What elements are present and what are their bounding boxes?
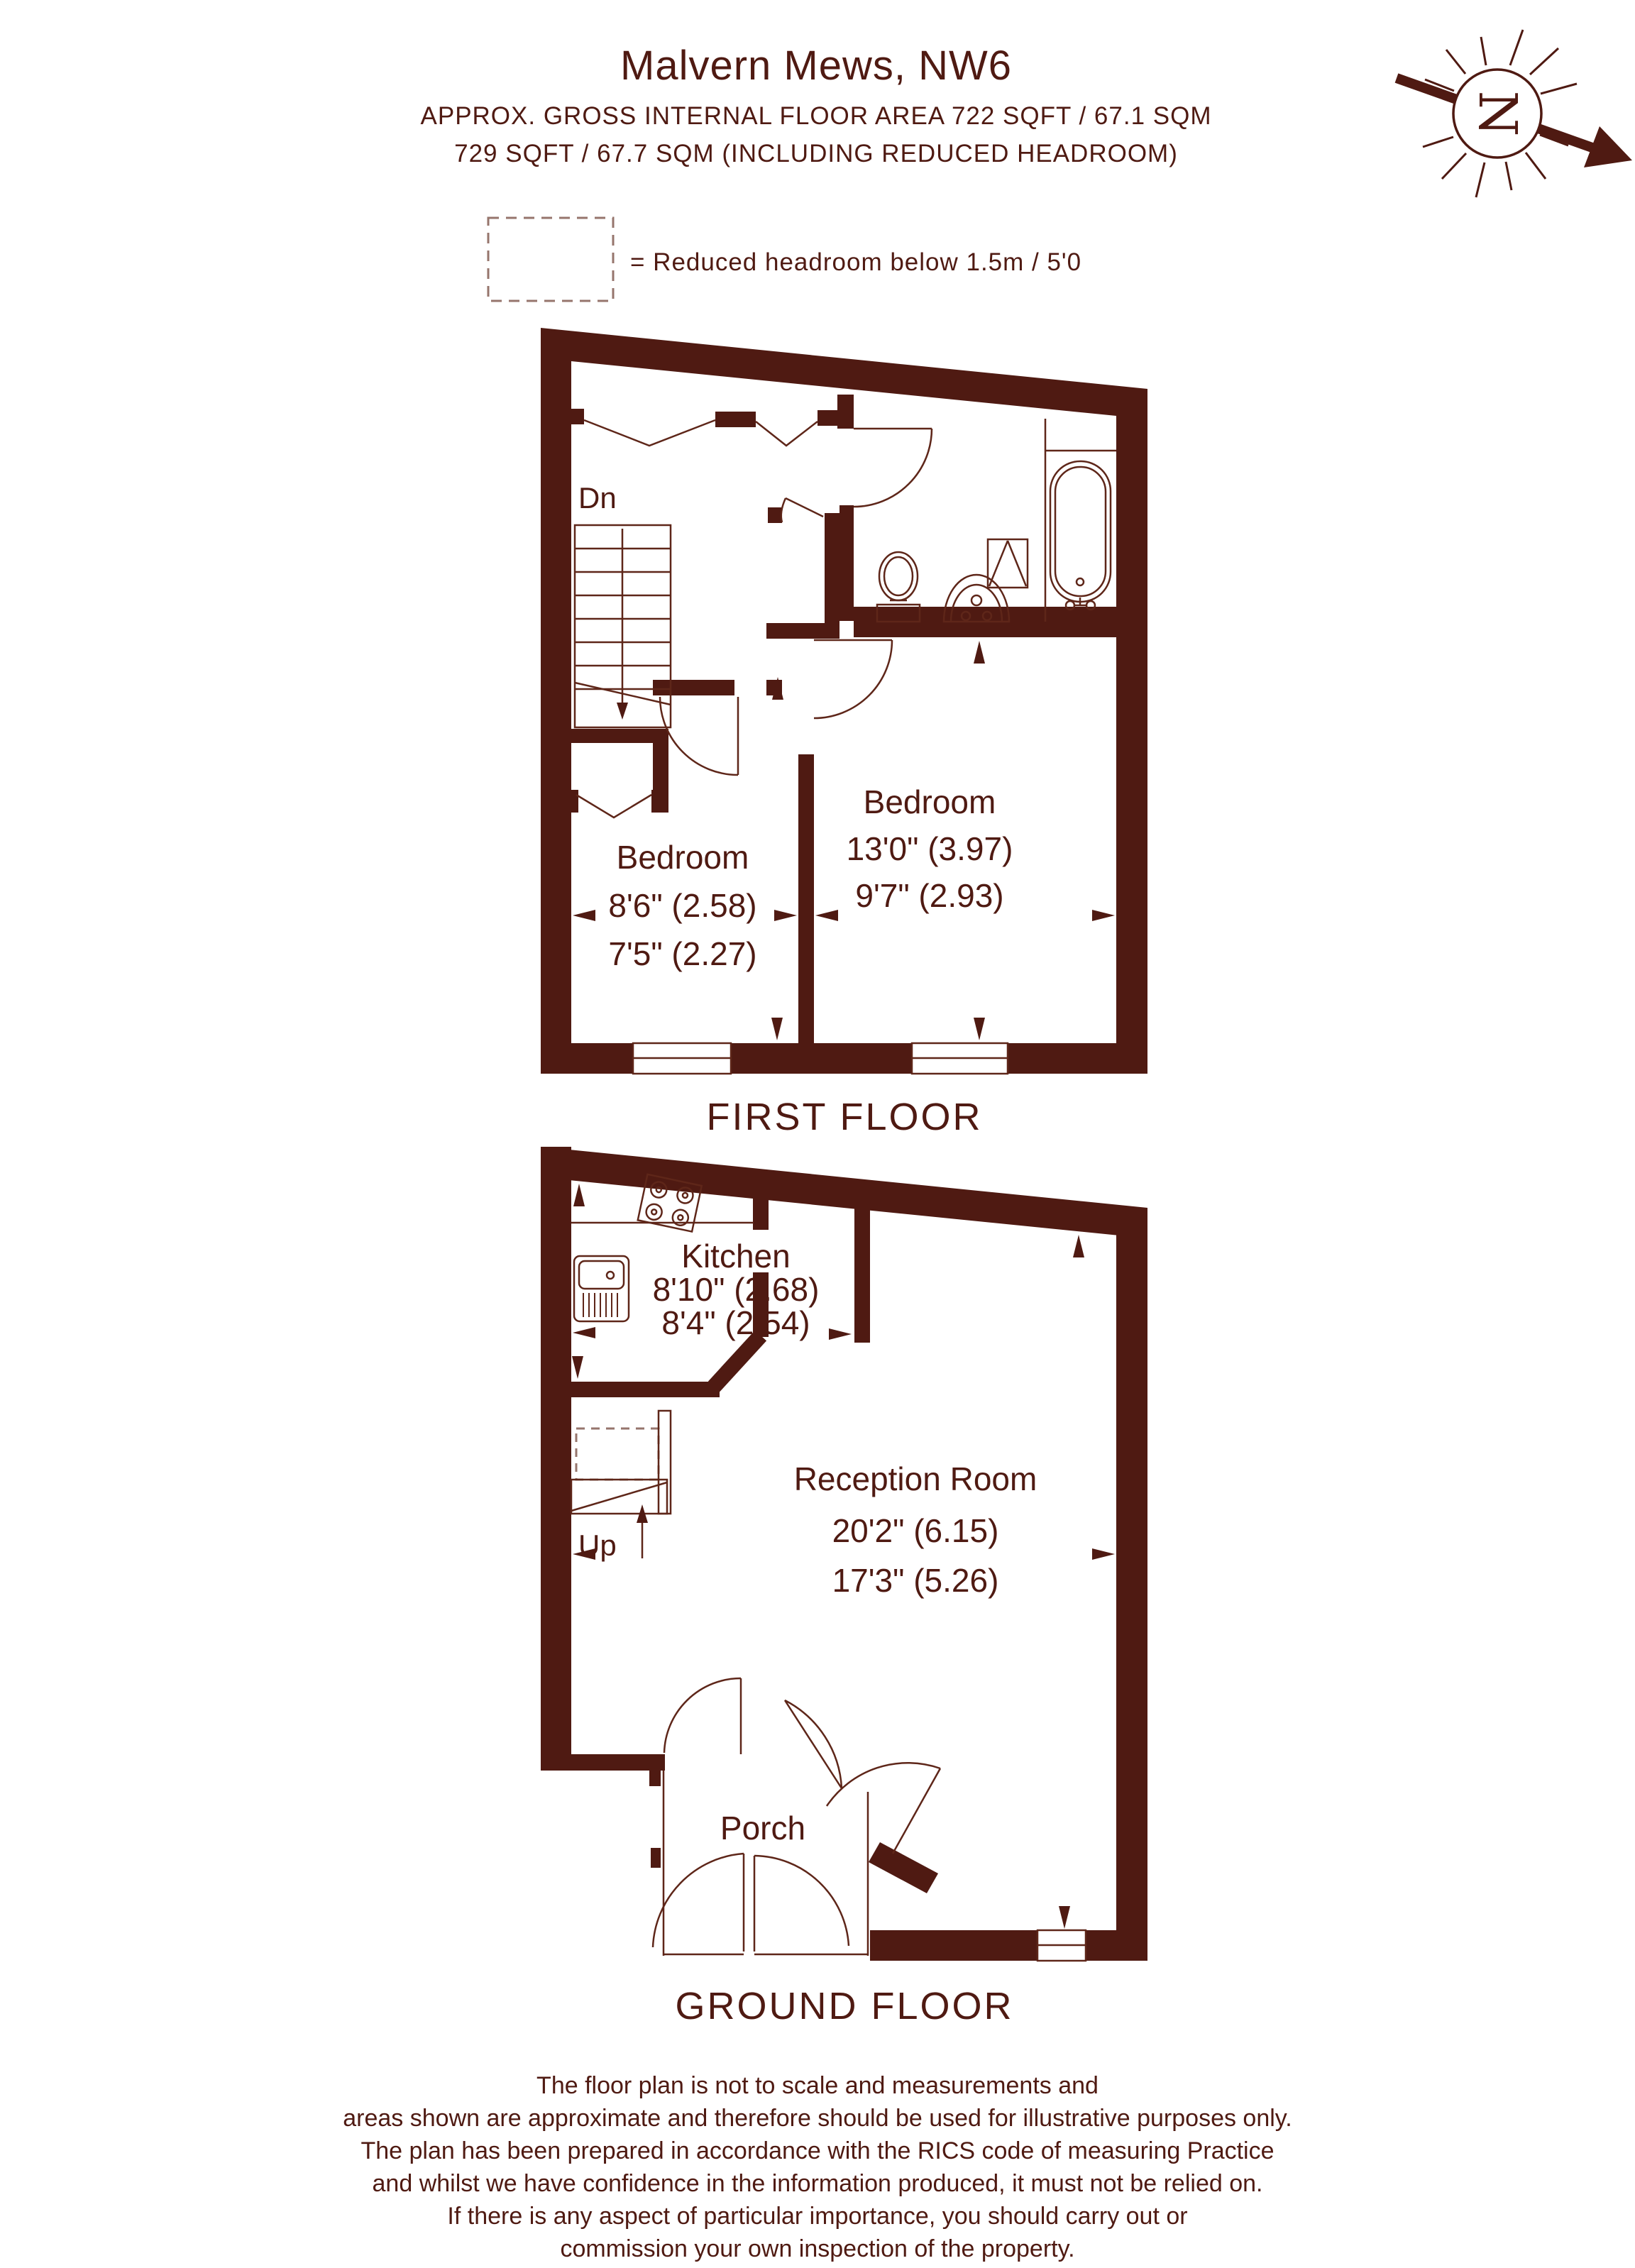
big-bedroom-door	[814, 640, 892, 718]
room-name: Reception Room	[794, 1460, 1037, 1497]
porch-angled-wall	[869, 1842, 938, 1893]
ground-bottom-right-wall	[870, 1930, 1147, 1961]
wall-stub	[649, 1771, 661, 1786]
small-bedroom-door	[660, 697, 738, 775]
subtitle-line2: 729 SQFT / 67.7 SQM (INCLUDING REDUCED H…	[454, 140, 1178, 167]
window	[912, 1043, 1008, 1074]
legend-text: = Reduced headroom below 1.5m / 5'0	[630, 248, 1081, 276]
first-floor-caption: FIRST FLOOR	[706, 1096, 982, 1138]
subtitle-line1: APPROX. GROSS INTERNAL FLOOR AREA 722 SQ…	[421, 102, 1212, 130]
ground-bottom-left-wall	[541, 1754, 665, 1771]
bath-icon	[1045, 419, 1116, 622]
room-dim-metric: 7'5" (2.27)	[608, 935, 756, 972]
reduced-headroom-swatch	[488, 218, 613, 301]
north-compass-icon: N	[1397, 30, 1632, 197]
room-dim-imperial: 20'2" (6.15)	[832, 1512, 999, 1549]
room-label-porch: Porch	[720, 1810, 805, 1846]
room-dim-imperial: 8'10" (2.68)	[653, 1271, 820, 1308]
disclaimer-line: The plan has been prepared in accordance…	[360, 2137, 1274, 2164]
room-name: Bedroom	[864, 783, 996, 820]
ground-right-wall	[1116, 1208, 1147, 1961]
room-label-kitchen: Kitchen 8'10" (2.68) 8'4" (2.54)	[653, 1238, 820, 1341]
stairs-direction-arrow	[617, 703, 628, 720]
stairs-label: Dn	[578, 481, 617, 514]
porch-inner-double-doors	[664, 1678, 842, 1788]
ground-floor-plan: Up	[541, 1147, 1147, 2027]
disclaimer: The floor plan is not to scale and measu…	[343, 2072, 1292, 2262]
disclaimer-line: areas shown are approximate and therefor…	[343, 2105, 1292, 2132]
disclaimer-line: and whilst we have confidence in the inf…	[373, 2170, 1263, 2197]
disclaimer-line: The floor plan is not to scale and measu…	[536, 2072, 1099, 2099]
bathroom-door	[854, 429, 932, 507]
wall-stub	[651, 1848, 661, 1868]
reduced-headroom-legend: = Reduced headroom below 1.5m / 5'0	[488, 218, 1081, 301]
room-label-bedroom-large: Bedroom 13'0" (3.97) 9'7" (2.93)	[847, 783, 1013, 914]
header: Malvern Mews, NW6 APPROX. GROSS INTERNAL…	[421, 43, 1212, 167]
room-dim-metric: 9'7" (2.93)	[855, 877, 1003, 914]
room-name: Kitchen	[681, 1238, 790, 1275]
page-title: Malvern Mews, NW6	[620, 43, 1012, 89]
room-dim-metric: 8'4" (2.54)	[661, 1304, 810, 1341]
ground-top-wall	[541, 1147, 1147, 1238]
porch-structure	[664, 1771, 868, 1956]
disclaimer-line: If there is any aspect of particular imp…	[447, 2203, 1187, 2230]
room-dim-metric: 17'3" (5.26)	[832, 1562, 999, 1599]
interior-wall-stub	[854, 1208, 870, 1343]
room-label-reception: Reception Room 20'2" (6.15) 17'3" (5.26)	[794, 1460, 1037, 1599]
cupboard-door	[781, 498, 823, 522]
first-floor-plan: Dn	[541, 328, 1147, 1138]
floorplan-canvas: Malvern Mews, NW6 APPROX. GROSS INTERNAL…	[0, 0, 1635, 2268]
room-dim-imperial: 13'0" (3.97)	[847, 830, 1013, 867]
ground-left-wall	[541, 1147, 571, 1771]
room-name: Bedroom	[617, 839, 749, 876]
disclaimer-line: commission your own inspection of the pr…	[560, 2235, 1074, 2262]
shower-unit-icon	[988, 539, 1028, 588]
window	[1037, 1930, 1086, 1961]
ground-floor-caption: GROUND FLOOR	[675, 1985, 1013, 2027]
compass-north-letter: N	[1467, 91, 1528, 137]
reduced-headroom-area	[576, 1428, 659, 1480]
room-label-bedroom-small: Bedroom 8'6" (2.58) 7'5" (2.27)	[608, 839, 756, 972]
room-dim-imperial: 8'6" (2.58)	[608, 887, 756, 924]
stairs-up: Up	[571, 1411, 671, 1562]
window	[633, 1043, 731, 1074]
kitchen-sink-icon	[574, 1256, 629, 1321]
